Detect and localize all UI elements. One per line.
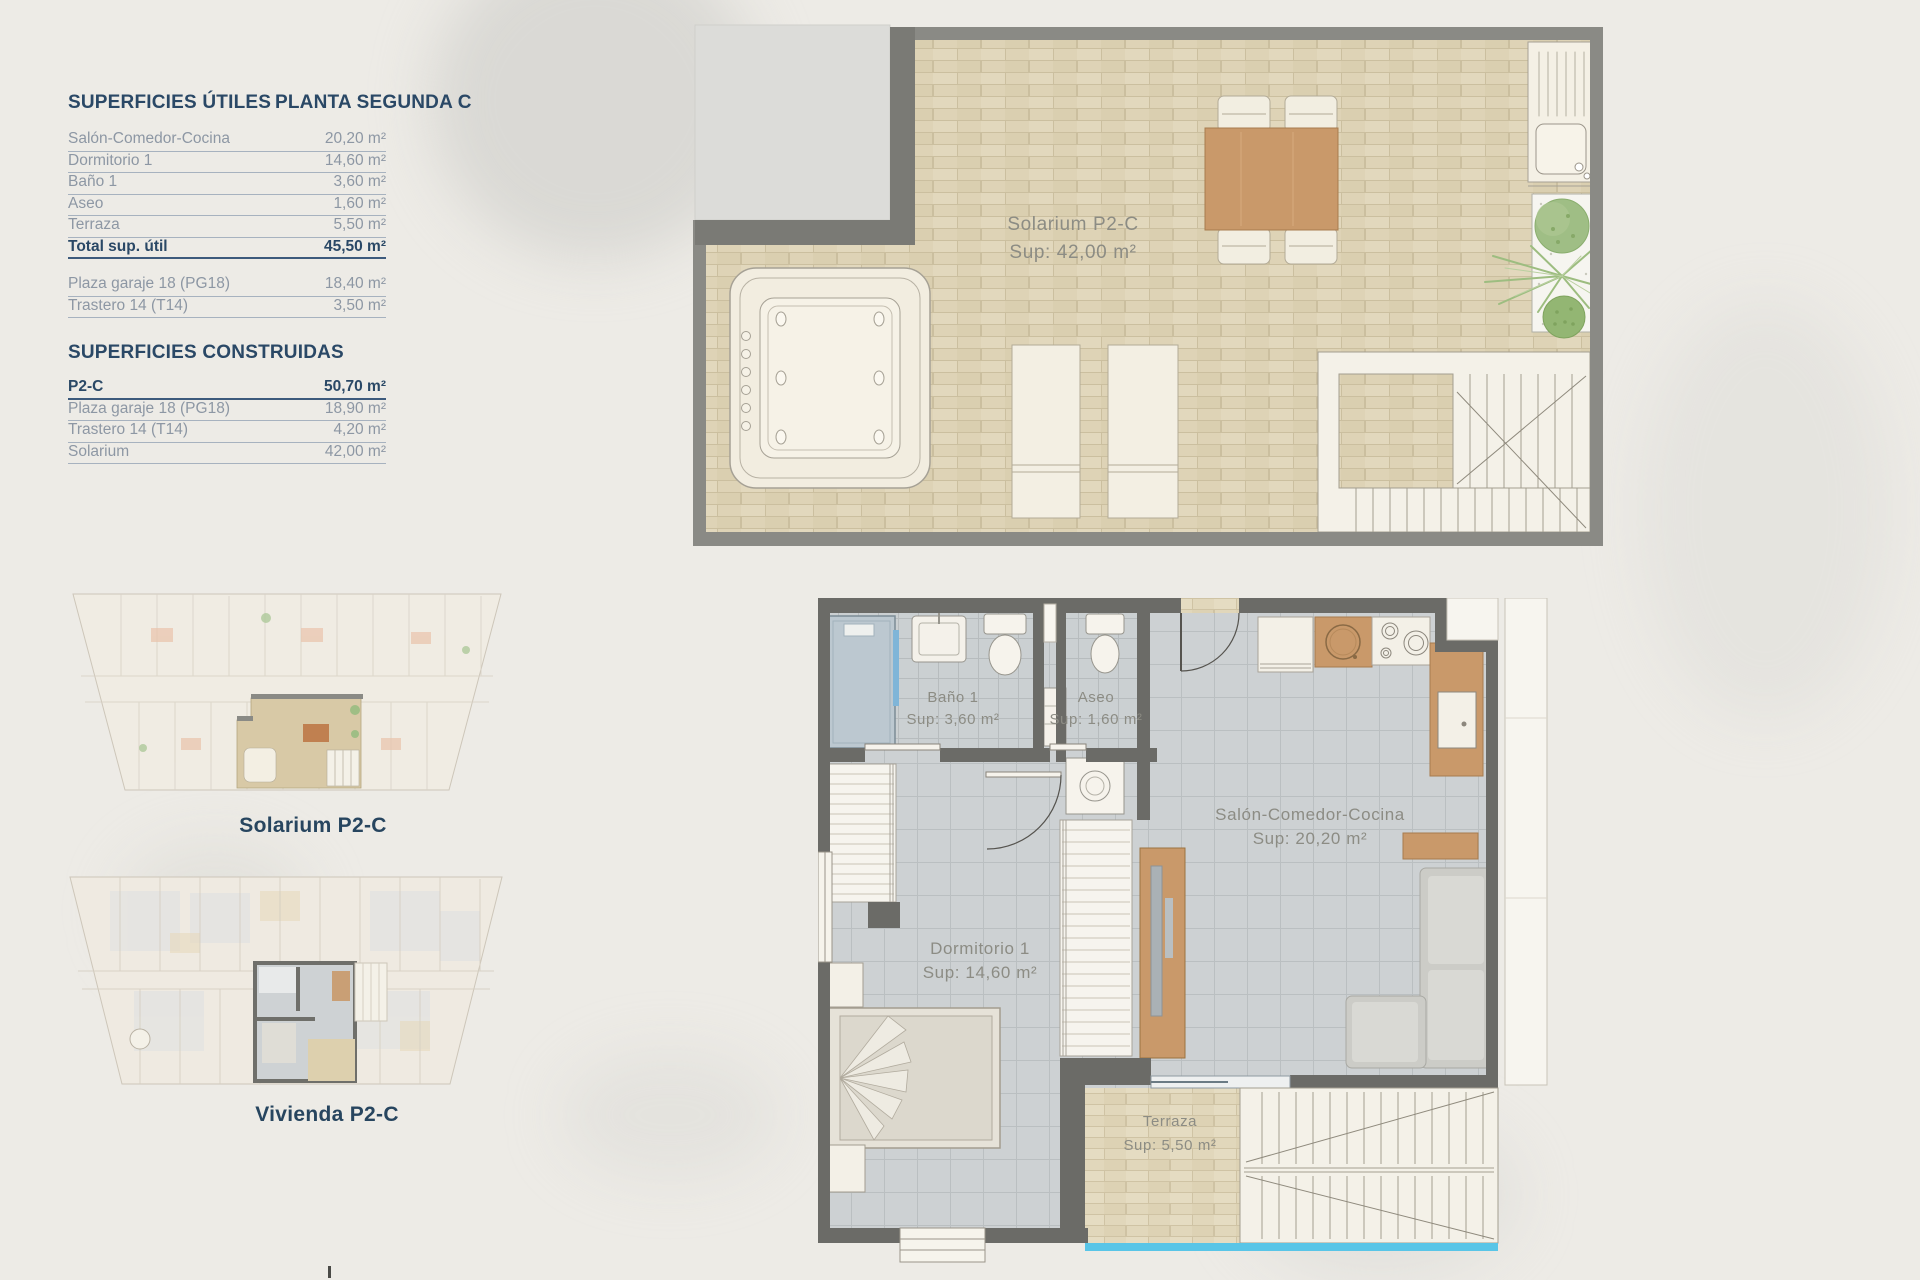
bed [826, 1008, 1000, 1148]
row-value: 3,60 m² [333, 173, 386, 191]
construidas-rows: P2-C 50,70 m² Plaza garaje 18 (PG18) 18,… [68, 378, 386, 464]
table-row: Solarium 42,00 m² [68, 443, 386, 465]
table-row: Aseo 1,60 m² [68, 195, 386, 217]
room-sup-terraza: Sup: 5,50 m² [1123, 1137, 1216, 1154]
neighbour-landing [1505, 598, 1547, 1085]
room-label-solarium: Solarium P2-C [1007, 214, 1138, 235]
terrace-stairs [1240, 1088, 1498, 1243]
background-stain [560, 1050, 780, 1180]
oven [1438, 692, 1476, 748]
dining-table [1205, 128, 1338, 230]
corner-niche [1447, 598, 1498, 640]
construidas-header: SUPERFICIES CONSTRUIDAS [68, 342, 386, 368]
table-row: Baño 1 3,60 m² [68, 173, 386, 195]
row-value: 5,50 m² [333, 216, 386, 234]
room-sup-aseo: Sup: 1,60 m² [1049, 711, 1142, 728]
utiles-header: SUPERFICIES ÚTILES PLANTA SEGUNDA C [68, 92, 386, 118]
utiles-title: SUPERFICIES ÚTILES [68, 92, 271, 113]
table-row: Trastero 14 (T14) 4,20 m² [68, 421, 386, 443]
room-sup-salon: Sup: 20,20 m² [1253, 829, 1368, 848]
row-value: 20,20 m² [325, 130, 386, 148]
surface-table-panel: SUPERFICIES ÚTILES PLANTA SEGUNDA C Saló… [68, 92, 386, 464]
total-row: Total sup. útil 45,50 m² [68, 238, 386, 260]
construidas-title: SUPERFICIES CONSTRUIDAS [68, 342, 344, 363]
row-label: Plaza garaje 18 (PG18) [68, 400, 230, 418]
row-value: 3,50 m² [333, 297, 386, 315]
jacuzzi [730, 268, 930, 488]
vivienda-floor-plan: Baño 1 Sup: 3,60 m² Aseo Sup: 1,60 m² Sa… [818, 598, 1548, 1264]
spiral-stair [130, 1029, 150, 1049]
table-row: Terraza 5,50 m² [68, 216, 386, 238]
utiles-rows: Salón-Comedor-Cocina 20,20 m² Dormitorio… [68, 130, 386, 259]
background-stain [1640, 300, 1890, 720]
nightstand [825, 963, 863, 1007]
terrace-sliding-door [1151, 1076, 1290, 1088]
planta-subtitle: PLANTA SEGUNDA C [275, 92, 472, 114]
shower-glass [893, 630, 899, 706]
table-row: P2-C 50,70 m² [68, 378, 386, 400]
wood-wardrobe [1140, 848, 1185, 1058]
sun-lounger [1108, 345, 1178, 518]
room-label-terraza: Terraza [1143, 1113, 1197, 1130]
row-value: 45,50 m² [324, 238, 386, 256]
table-row: Salón-Comedor-Cocina 20,20 m² [68, 130, 386, 152]
row-label: P2-C [68, 378, 103, 396]
row-value: 42,00 m² [325, 443, 386, 461]
row-label: Solarium [68, 443, 129, 461]
table-row: Plaza garaje 18 (PG18) 18,90 m² [68, 400, 386, 422]
highlighted-unit [237, 694, 363, 788]
sun-lounger [1012, 345, 1080, 518]
outdoor-sink [1528, 42, 1593, 186]
room-sup-bano: Sup: 3,60 m² [906, 711, 999, 728]
room-label-aseo: Aseo [1078, 689, 1115, 706]
washing-machine [1066, 758, 1124, 814]
row-label: Trastero 14 (T14) [68, 421, 188, 439]
row-label: Aseo [68, 195, 103, 213]
page-mark [328, 1266, 331, 1278]
room-label-salon: Salón-Comedor-Cocina [1215, 805, 1405, 824]
row-value: 14,60 m² [325, 152, 386, 170]
row-value: 4,20 m² [333, 421, 386, 439]
row-value: 50,70 m² [324, 378, 386, 396]
row-label: Plaza garaje 18 (PG18) [68, 275, 230, 293]
entrance-threshold [1181, 598, 1239, 613]
row-label: Terraza [68, 216, 120, 234]
room-sup-dormitorio: Sup: 14,60 m² [923, 963, 1038, 982]
row-label: Baño 1 [68, 173, 117, 191]
vivienda-overview-thumbnail [50, 871, 523, 1090]
row-label: Salón-Comedor-Cocina [68, 130, 230, 148]
wardrobe-shelves [1060, 820, 1132, 1056]
room-label-bano: Baño 1 [927, 689, 978, 706]
plant-bush [1543, 296, 1585, 338]
nightstand [825, 1145, 865, 1192]
room-sup-solarium: Sup: 42,00 m² [1009, 242, 1136, 263]
glass-balustrade [1085, 1243, 1498, 1251]
row-value: 1,60 m² [333, 195, 386, 213]
staircase [1318, 352, 1590, 532]
table-row: Trastero 14 (T14) 3,50 m² [68, 297, 386, 319]
window [900, 1228, 985, 1262]
shaft [1044, 604, 1056, 642]
wardrobe-shelves [824, 764, 896, 902]
sideboard [1403, 833, 1478, 859]
neighbour-roof-area [695, 25, 890, 220]
row-value: 18,40 m² [325, 275, 386, 293]
window [818, 852, 832, 962]
vivienda-thumbnail-caption: Vivienda P2-C [255, 1103, 399, 1127]
cooktop [1372, 617, 1430, 665]
solarium-thumbnail-caption: Solarium P2-C [239, 814, 386, 838]
row-label: Total sup. útil [68, 238, 168, 256]
table-row: Dormitorio 1 14,60 m² [68, 152, 386, 174]
table-row: Plaza garaje 18 (PG18) 18,40 m² [68, 275, 386, 297]
solarium-floor-plan: Solarium P2-C Sup: 42,00 m² [693, 24, 1603, 546]
garage-rows: Plaza garaje 18 (PG18) 18,40 m² Trastero… [68, 275, 386, 318]
solarium-overview-thumbnail [51, 588, 523, 798]
row-value: 18,90 m² [325, 400, 386, 418]
row-label: Trastero 14 (T14) [68, 297, 188, 315]
plant-bush [1535, 199, 1589, 253]
row-label: Dormitorio 1 [68, 152, 152, 170]
room-label-dormitorio: Dormitorio 1 [930, 939, 1030, 958]
